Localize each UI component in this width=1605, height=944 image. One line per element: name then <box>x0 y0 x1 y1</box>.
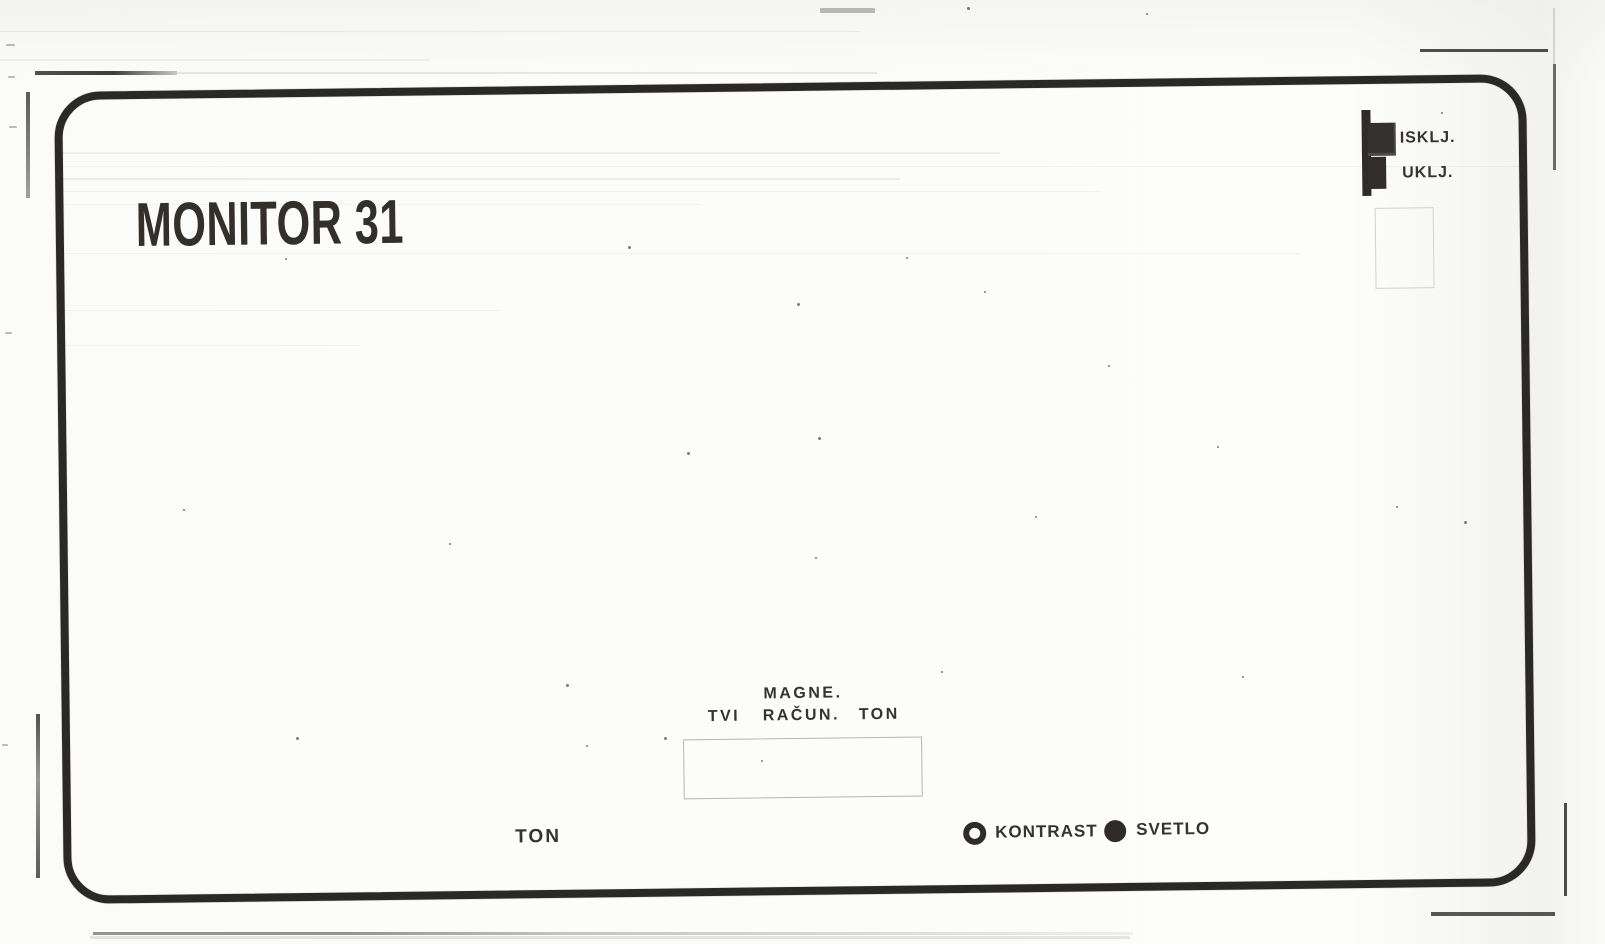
scan-streak <box>90 936 1130 939</box>
power-switch[interactable] <box>1357 106 1406 203</box>
dust-speck <box>818 437 821 440</box>
power-switch-cutout-outline <box>1375 207 1435 289</box>
crop-mark-top-right-horizontal <box>1420 49 1548 52</box>
scan-edge-mark <box>820 8 875 13</box>
scan-edge-mark <box>8 76 15 78</box>
dust-speck <box>285 258 287 260</box>
dust-speck <box>1217 446 1219 448</box>
dust-speck <box>797 303 800 306</box>
scanned-page: MONITOR 31 ISKLJ. UKLJ. MAGNE. TVI RAČUN… <box>0 0 1605 944</box>
scan-edge-mark <box>9 126 17 128</box>
crop-mark-bottom-left-horizontal <box>93 932 1133 935</box>
svetlo-label: SVETLO <box>1136 819 1210 840</box>
crop-mark-bottom-right-vertical <box>1564 803 1567 896</box>
crop-mark-top-left-horizontal <box>35 71 177 75</box>
power-switch-knob-lower-icon <box>1368 157 1386 189</box>
volume-label: TON <box>515 826 561 849</box>
dust-speck <box>1242 676 1244 678</box>
input-tvi-label: TVI <box>708 708 741 726</box>
kontrast-label: KONTRAST <box>995 821 1098 842</box>
dust-speck <box>664 737 667 740</box>
crop-mark-top-left-vertical <box>26 92 30 198</box>
dust-speck <box>984 291 986 293</box>
power-switch-knob-icon <box>1368 123 1396 156</box>
panel-title: MONITOR 31 <box>135 192 404 257</box>
scan-edge-mark <box>6 44 15 46</box>
crop-mark-top-right-vertical-faint <box>1553 8 1555 64</box>
scan-streak <box>0 59 430 61</box>
power-on-label: UKLJ. <box>1402 164 1453 183</box>
dust-speck <box>1464 521 1467 524</box>
dust-speck <box>967 7 970 10</box>
dust-speck <box>1146 13 1148 15</box>
scan-streak <box>177 72 877 74</box>
dust-speck <box>1108 365 1110 367</box>
crop-mark-bottom-right-horizontal <box>1431 912 1555 916</box>
dust-speck <box>906 257 908 259</box>
scan-edge-mark <box>5 332 12 334</box>
dust-speck <box>1035 516 1037 518</box>
dust-speck <box>1441 112 1443 114</box>
input-racun-label: RAČUN. <box>763 706 840 725</box>
dust-speck <box>586 745 588 747</box>
input-selector-top-label: MAGNE. <box>763 684 842 703</box>
dust-speck <box>449 543 451 545</box>
dust-speck <box>183 509 185 511</box>
dust-speck <box>815 557 817 559</box>
crop-mark-bottom-left-vertical <box>36 714 40 878</box>
dust-speck <box>761 760 763 762</box>
power-off-label: ISKLJ. <box>1400 129 1456 148</box>
scan-edge-mark <box>2 744 8 746</box>
crop-mark-top-right-vertical <box>1553 64 1556 170</box>
dust-speck <box>687 452 690 455</box>
dust-speck <box>941 671 943 673</box>
dust-speck <box>566 684 569 687</box>
dust-speck <box>628 246 631 249</box>
dust-speck <box>1396 506 1398 508</box>
svetlo-knob-icon[interactable] <box>1104 820 1126 842</box>
monitor-front-panel: MONITOR 31 ISKLJ. UKLJ. MAGNE. TVI RAČUN… <box>54 74 1536 904</box>
input-ton-label: TON <box>859 706 900 724</box>
input-selector-buttons[interactable] <box>683 736 923 799</box>
kontrast-knob-icon[interactable] <box>963 822 986 845</box>
dust-speck <box>296 737 299 740</box>
scan-streak <box>0 31 860 32</box>
